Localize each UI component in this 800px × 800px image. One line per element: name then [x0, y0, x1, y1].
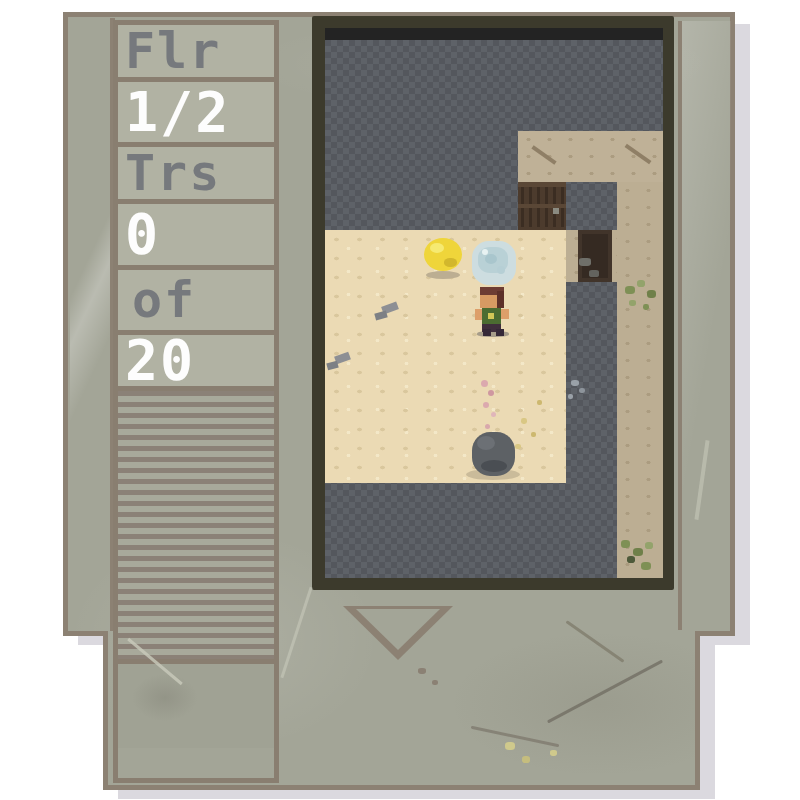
- game-window-frame: [312, 16, 674, 590]
- moss-speck: [505, 742, 515, 750]
- cartridge-right-rail: [678, 21, 731, 630]
- viewport-inner[interactable]: [325, 28, 663, 578]
- screen: Flr1/2Trs0of20: [0, 0, 800, 800]
- boulder-sprite-part: [477, 436, 495, 450]
- cartridge-left-rail: [70, 18, 115, 631]
- hud-cells: Flr1/2Trs0of20: [118, 25, 274, 391]
- hud-cell-treasure-count: 0: [118, 204, 274, 270]
- moss-speck: [522, 756, 530, 763]
- sidebar-bottom-panel: [118, 664, 274, 748]
- hud-cell-floor-value: 1/2: [118, 82, 274, 147]
- hud-cell-treasure-label: Trs: [118, 147, 274, 204]
- cartridge-grip-lines: [118, 391, 274, 664]
- hud-sidebar: Flr1/2Trs0of20: [113, 20, 279, 783]
- hud-cell-treasure-total: 20: [118, 335, 274, 391]
- moss-speck: [550, 750, 557, 756]
- hud-cell-floor-label: Flr: [118, 25, 274, 82]
- speck-mark: [432, 680, 438, 685]
- hud-cell-treasure-of: of: [118, 270, 274, 335]
- boulder-sprite: [325, 28, 663, 578]
- speck-mark: [418, 668, 426, 674]
- boulder-sprite-part: [481, 460, 507, 472]
- cartridge-arrow-icon-inner: [356, 609, 440, 650]
